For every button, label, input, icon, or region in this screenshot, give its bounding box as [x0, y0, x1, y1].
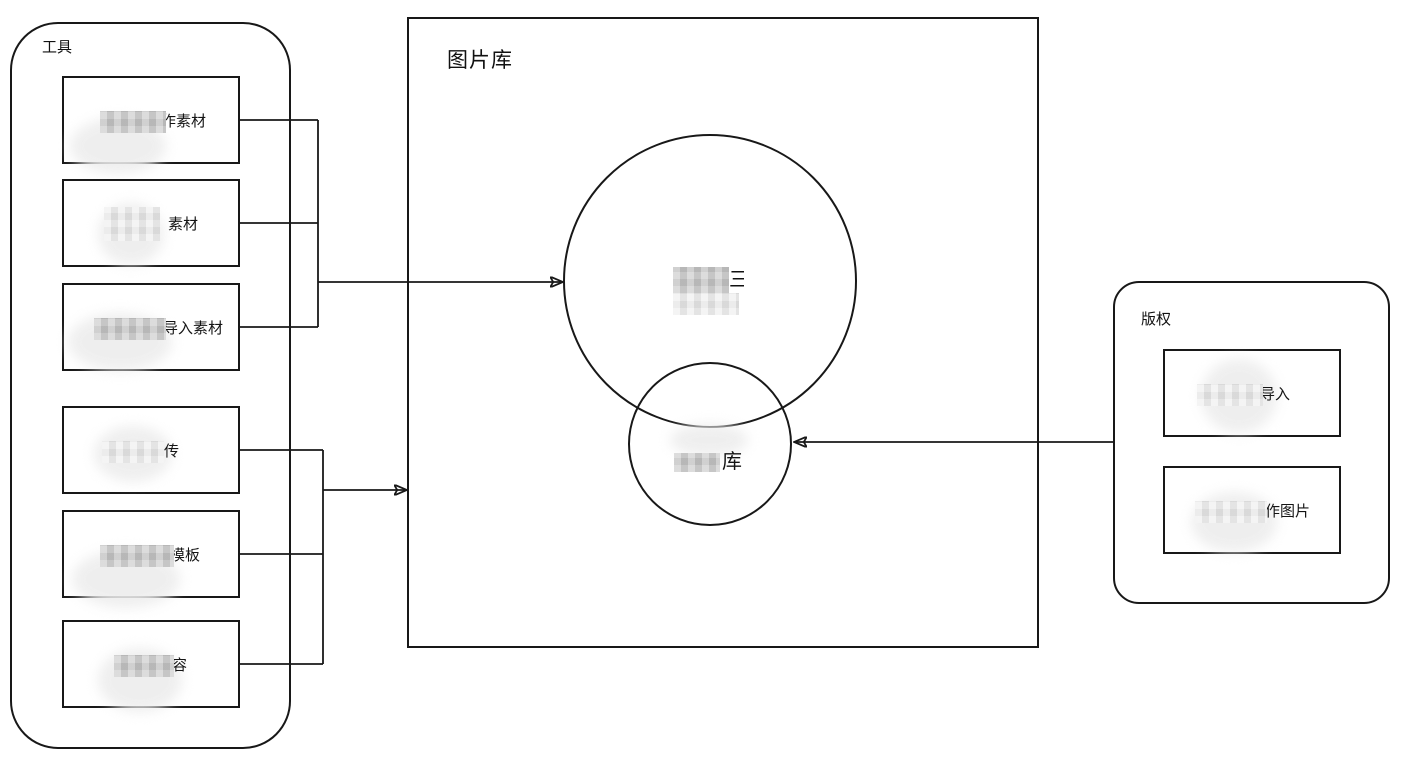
small-circle-label: 库: [722, 450, 742, 474]
tool-node-import-material[interactable]: 导入素材: [62, 283, 240, 371]
copyright-node-label: 导入: [1260, 384, 1290, 406]
redaction-patch: [1197, 384, 1263, 406]
redaction-patch: [100, 111, 166, 133]
tool-node-label: 模板: [170, 545, 200, 567]
diagram-canvas: 工具 图片库 版权 作素材 素材 导入素材: [0, 0, 1411, 766]
copyright-node-label: 作图片: [1265, 501, 1310, 523]
copyright-panel-title: 版权: [1141, 308, 1171, 329]
redaction-patch: [100, 545, 174, 567]
redaction-patch: [104, 207, 160, 241]
tool-node-promotion[interactable]: 传: [62, 406, 240, 494]
redaction-patch: [674, 453, 720, 472]
tool-node-label: 容: [172, 655, 187, 677]
library-panel-title: 图片库: [447, 44, 513, 74]
redaction-patch: [102, 441, 164, 463]
tool-node-label: 作素材: [161, 111, 206, 133]
redaction-patch: [673, 267, 729, 293]
copyright-node-import[interactable]: 导入: [1163, 349, 1341, 437]
redaction-patch: [1195, 501, 1267, 523]
tools-panel-title: 工具: [42, 36, 72, 57]
redaction-patch: [673, 293, 739, 315]
tool-node-label: 导入素材: [163, 318, 223, 340]
tool-node-content[interactable]: 容: [62, 620, 240, 708]
copyright-node-make-image[interactable]: 作图片: [1163, 466, 1341, 554]
tool-node-template[interactable]: 模板: [62, 510, 240, 598]
redaction-patch: [114, 655, 174, 677]
tool-node-make-material[interactable]: 作素材: [62, 76, 240, 164]
tool-node-label: 素材: [168, 214, 198, 236]
tool-node-label: 传: [164, 441, 179, 463]
tool-node-material[interactable]: 素材: [62, 179, 240, 267]
redaction-patch: [94, 318, 166, 340]
